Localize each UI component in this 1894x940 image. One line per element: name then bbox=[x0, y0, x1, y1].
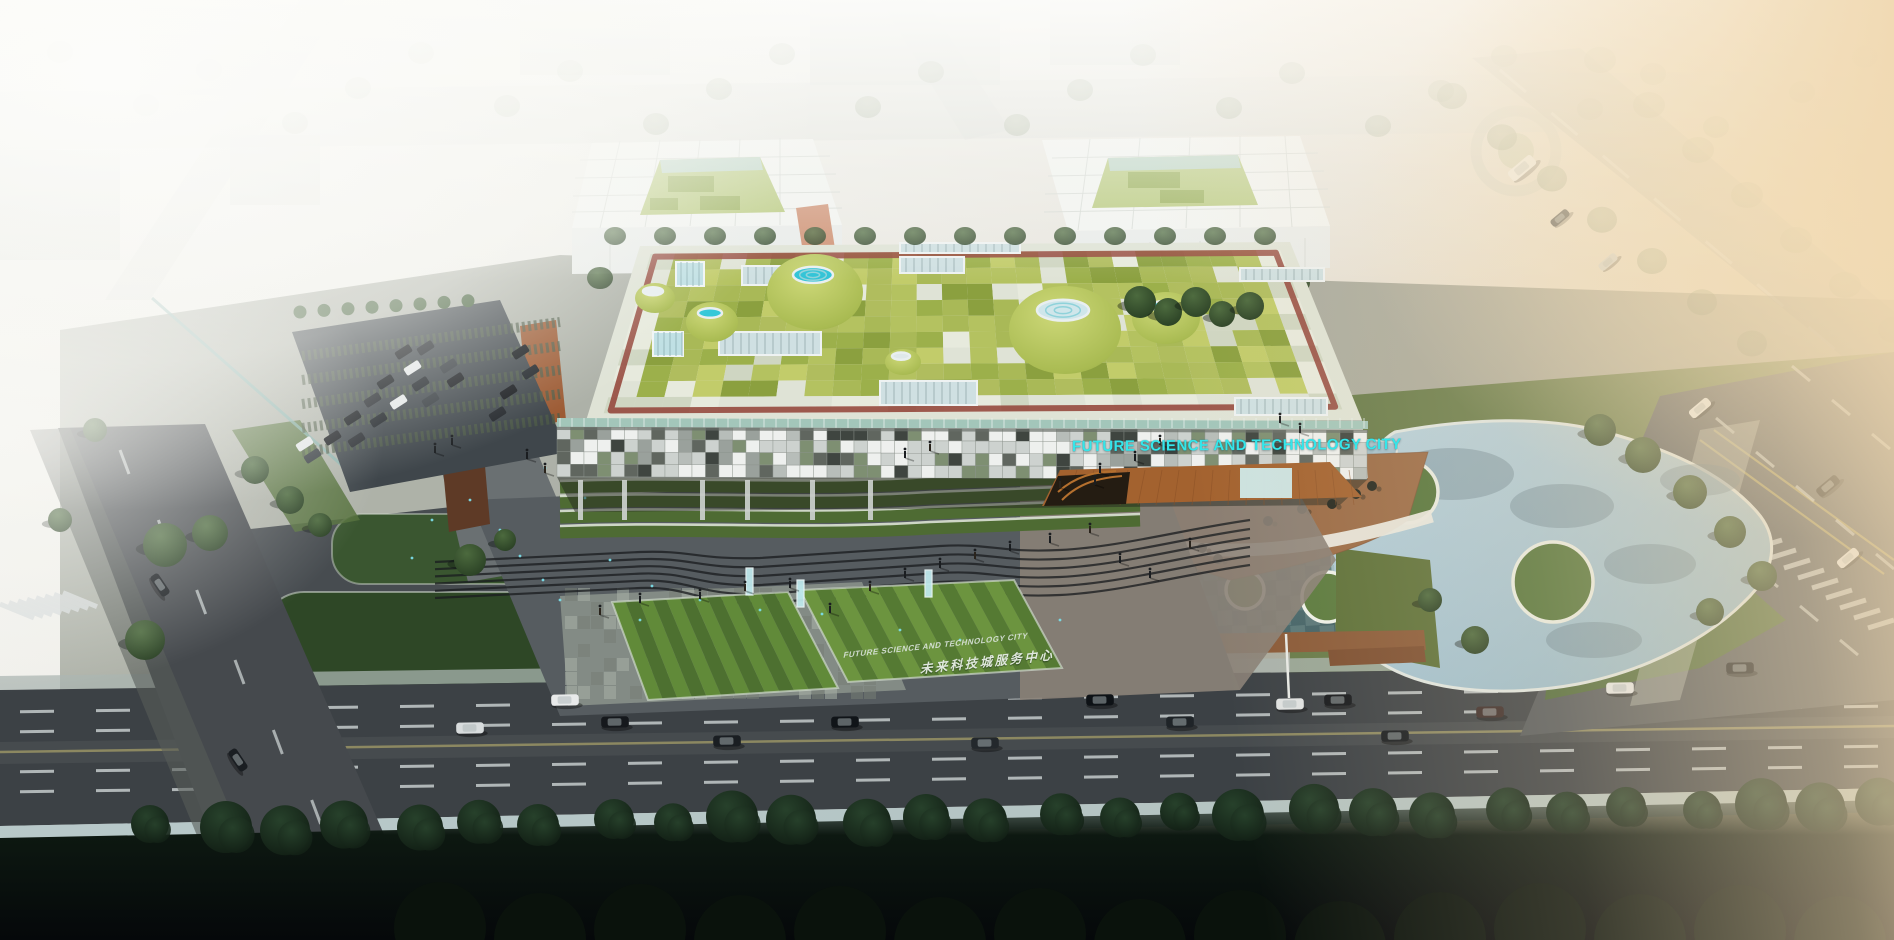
tree bbox=[276, 486, 304, 514]
facade-panel bbox=[773, 453, 787, 465]
pave-tile bbox=[591, 672, 603, 685]
hazy-tree bbox=[408, 42, 434, 64]
car-roof bbox=[978, 739, 992, 747]
facade-panel bbox=[989, 454, 1003, 466]
led-dot bbox=[821, 613, 824, 616]
avenue-tree bbox=[1829, 272, 1861, 298]
facade-panel bbox=[625, 464, 639, 476]
facade-panel bbox=[949, 453, 963, 465]
piloti-column bbox=[810, 480, 815, 520]
avenue-tree bbox=[1437, 83, 1467, 109]
facade-panel bbox=[1070, 454, 1084, 466]
roof-patch bbox=[723, 365, 753, 381]
roof-patch bbox=[867, 268, 893, 284]
car-roof bbox=[720, 737, 734, 745]
facade-panel bbox=[557, 464, 571, 476]
facade-panel bbox=[935, 453, 949, 465]
facade-panel bbox=[692, 465, 706, 477]
street-tree bbox=[1055, 806, 1084, 835]
hazy-tree bbox=[196, 59, 222, 81]
facade-panel bbox=[611, 440, 625, 452]
roof-patch bbox=[1211, 346, 1243, 362]
facade-panel bbox=[679, 452, 693, 464]
person-head bbox=[1149, 568, 1152, 571]
facade-panel bbox=[895, 466, 909, 478]
facade-panel bbox=[841, 441, 855, 453]
hazy-tree bbox=[494, 95, 520, 117]
hazy-tree bbox=[1279, 62, 1305, 84]
facade-panel bbox=[989, 466, 1003, 478]
hedge-bush bbox=[366, 301, 379, 314]
tree bbox=[494, 529, 516, 551]
facade-panel bbox=[1030, 466, 1044, 478]
back-row-tree bbox=[1104, 227, 1126, 245]
tree-shadow-on-water bbox=[1510, 484, 1614, 528]
facade-panel bbox=[1016, 441, 1030, 453]
street-tree bbox=[532, 817, 561, 846]
facade-panel bbox=[733, 453, 747, 465]
tree bbox=[125, 620, 165, 660]
facade-panel bbox=[760, 453, 774, 465]
facade-panel bbox=[719, 465, 733, 477]
person-head bbox=[434, 443, 437, 446]
facade-panel bbox=[652, 465, 666, 477]
roof-patch bbox=[942, 284, 968, 300]
piloti-column bbox=[868, 480, 873, 520]
roof-patch bbox=[917, 284, 942, 300]
roof-patch bbox=[778, 364, 807, 380]
tree bbox=[143, 523, 187, 567]
car-roof bbox=[608, 718, 622, 726]
car-roof bbox=[1331, 696, 1345, 704]
person-head bbox=[939, 558, 942, 561]
facade-panel bbox=[638, 440, 652, 452]
facade-panel bbox=[1192, 454, 1206, 466]
hazy-tree bbox=[1789, 81, 1815, 103]
facade-panel bbox=[908, 441, 922, 453]
roof-patch bbox=[1139, 267, 1168, 283]
facade-panel bbox=[638, 465, 652, 477]
street-tree bbox=[1366, 803, 1400, 837]
roof-patch bbox=[1027, 379, 1057, 395]
street-tree bbox=[608, 811, 636, 839]
roof-patch bbox=[916, 364, 944, 380]
street-tree bbox=[144, 816, 171, 843]
car-roof bbox=[1613, 684, 1627, 692]
facade-panel bbox=[868, 453, 882, 465]
person-head bbox=[929, 441, 932, 444]
person-head bbox=[1009, 541, 1012, 544]
lounge-chair bbox=[1367, 481, 1377, 491]
back-row-tree bbox=[1054, 227, 1076, 245]
facade-panel bbox=[746, 440, 760, 452]
facade-panel bbox=[1016, 454, 1030, 466]
person-head bbox=[904, 448, 907, 451]
facade-panel bbox=[881, 465, 895, 477]
facade-panel bbox=[1003, 454, 1017, 466]
person-head bbox=[1279, 413, 1282, 416]
roof-patch bbox=[1188, 266, 1218, 282]
facade-panel bbox=[557, 439, 571, 451]
led-dot bbox=[1059, 619, 1062, 622]
roof-patch bbox=[967, 284, 993, 300]
facade-panel bbox=[868, 465, 882, 477]
avenue-tree bbox=[1682, 137, 1714, 163]
facade-panel bbox=[611, 464, 625, 476]
roof-patch bbox=[917, 316, 943, 332]
led-dot bbox=[469, 499, 472, 502]
hedge-bush bbox=[294, 306, 307, 319]
street-tree bbox=[1230, 805, 1266, 841]
facade-panel bbox=[787, 465, 801, 477]
facade-panel bbox=[611, 452, 625, 464]
street-tree bbox=[860, 813, 894, 847]
roof-patch bbox=[943, 316, 970, 332]
street-tree bbox=[472, 813, 503, 844]
facade-panel bbox=[841, 453, 855, 465]
roof-patch bbox=[1089, 267, 1117, 283]
facade-panel bbox=[949, 466, 963, 478]
roof-patch bbox=[1137, 378, 1168, 394]
main-building bbox=[557, 242, 1368, 520]
facade-panel bbox=[760, 465, 774, 477]
facade-panel bbox=[1030, 454, 1044, 466]
hedge-bush bbox=[390, 299, 403, 312]
pave-tile bbox=[565, 616, 577, 629]
tree bbox=[1625, 437, 1661, 473]
street-tree bbox=[1425, 806, 1457, 838]
piloti-column bbox=[745, 480, 750, 520]
hazy-tree bbox=[918, 61, 944, 83]
street-tree bbox=[1753, 794, 1789, 830]
pave-tile bbox=[604, 658, 616, 671]
facade-panel bbox=[814, 453, 828, 465]
piloti-column bbox=[578, 480, 583, 520]
pave-tile bbox=[565, 672, 577, 685]
back-row-tree bbox=[1004, 227, 1026, 245]
roof-patch bbox=[943, 332, 970, 348]
facade-panel bbox=[922, 466, 936, 478]
roof-patch bbox=[804, 380, 833, 396]
tree bbox=[83, 418, 107, 442]
tree bbox=[587, 267, 613, 289]
hazy-tree bbox=[1216, 97, 1242, 119]
avenue-tree bbox=[1584, 47, 1616, 73]
roof-patch bbox=[971, 363, 999, 379]
facade-panel bbox=[584, 440, 598, 452]
facade-panel bbox=[584, 452, 598, 464]
facade-panel bbox=[571, 464, 585, 476]
street-tree bbox=[1114, 809, 1142, 837]
pave-tile bbox=[578, 616, 590, 629]
pave-tile bbox=[578, 644, 590, 657]
distant-building bbox=[520, 0, 670, 75]
roof-patch bbox=[713, 285, 741, 301]
court-lawn bbox=[700, 196, 740, 210]
facade-panel bbox=[854, 465, 868, 477]
roof-patch bbox=[636, 381, 668, 397]
roof-patch bbox=[863, 332, 890, 348]
facade-panel bbox=[598, 440, 612, 452]
street-tree bbox=[1813, 797, 1848, 832]
pave-tile bbox=[851, 686, 863, 699]
tree bbox=[48, 508, 72, 532]
roof-patch bbox=[738, 285, 766, 301]
facade-panel bbox=[1138, 454, 1152, 466]
car-roof bbox=[1483, 708, 1497, 716]
court-lawn bbox=[668, 176, 714, 192]
back-row-tree bbox=[1254, 227, 1276, 245]
facade-panel bbox=[827, 465, 841, 477]
facade-panel bbox=[989, 441, 1003, 453]
hazy-tree bbox=[1640, 63, 1666, 85]
person-head bbox=[526, 449, 529, 452]
roof-patch bbox=[751, 365, 781, 381]
person-head bbox=[974, 549, 977, 552]
skylight bbox=[880, 381, 977, 405]
roof-patch bbox=[1130, 347, 1160, 363]
facade-panel bbox=[557, 452, 571, 464]
hazy-tree bbox=[1130, 44, 1156, 66]
facade-panel bbox=[827, 440, 841, 452]
roof-patch bbox=[1188, 362, 1220, 378]
roof-patch bbox=[1109, 379, 1140, 395]
pave-tile bbox=[604, 616, 616, 629]
led-dot bbox=[639, 619, 642, 622]
person-head bbox=[1059, 478, 1062, 481]
roof-patch bbox=[835, 348, 863, 364]
roof-patch bbox=[692, 381, 723, 397]
piloti-column bbox=[622, 480, 627, 520]
person-head bbox=[544, 463, 547, 466]
facade-panel bbox=[1057, 441, 1071, 453]
pave-tile bbox=[604, 672, 616, 685]
facade-panel bbox=[976, 441, 990, 453]
roof-patch bbox=[968, 316, 995, 332]
roof-patch bbox=[836, 332, 864, 348]
car-roof bbox=[838, 718, 852, 726]
tree bbox=[1461, 626, 1489, 654]
hazy-tree bbox=[345, 77, 371, 99]
back-row-tree bbox=[804, 227, 826, 245]
car-roof bbox=[558, 696, 572, 704]
facade-panel bbox=[1043, 466, 1057, 478]
person-head bbox=[1049, 533, 1052, 536]
person-head bbox=[1299, 423, 1302, 426]
person-head bbox=[829, 603, 832, 606]
roof-patch bbox=[917, 300, 943, 316]
roof-patch bbox=[864, 316, 891, 332]
facade-panel bbox=[1043, 454, 1057, 466]
facade-panel bbox=[787, 453, 801, 465]
tree bbox=[192, 515, 228, 551]
back-row-tree bbox=[604, 227, 626, 245]
roof-patch bbox=[776, 380, 806, 396]
facade-panel bbox=[706, 440, 720, 452]
facade-panel bbox=[1111, 454, 1125, 466]
facade-panel bbox=[598, 452, 612, 464]
led-dot bbox=[651, 585, 654, 588]
glass-box bbox=[676, 262, 704, 286]
tree bbox=[1747, 561, 1777, 591]
tree-shadow-on-water bbox=[1546, 622, 1642, 658]
facade-panel bbox=[733, 465, 747, 477]
facade-panel bbox=[1003, 466, 1017, 478]
roof-patch bbox=[1134, 362, 1165, 378]
facade-panel bbox=[719, 440, 733, 452]
facade-panel bbox=[719, 452, 733, 464]
street-tree bbox=[1561, 804, 1590, 833]
roof-patch bbox=[834, 364, 862, 380]
roof-patch bbox=[969, 332, 996, 348]
facade-panel bbox=[665, 452, 679, 464]
street-tree bbox=[667, 815, 694, 842]
side-table bbox=[1376, 486, 1381, 491]
facade-panel bbox=[638, 452, 652, 464]
facade-panel bbox=[692, 452, 706, 464]
roof-patch bbox=[1206, 330, 1237, 346]
facade-panel bbox=[800, 453, 814, 465]
roof-patch bbox=[944, 364, 972, 380]
facade-panel bbox=[922, 453, 936, 465]
led-dot bbox=[559, 599, 562, 602]
facade-panel bbox=[584, 464, 598, 476]
roof-patch bbox=[865, 300, 891, 316]
person-head bbox=[1119, 553, 1122, 556]
roof-patch bbox=[1163, 267, 1192, 283]
hedge-bush bbox=[342, 302, 355, 315]
roof-patch bbox=[970, 347, 998, 363]
street-tree bbox=[413, 818, 445, 850]
facade-panel bbox=[706, 465, 720, 477]
facade-panel bbox=[665, 465, 679, 477]
facade-panel bbox=[571, 439, 585, 451]
facade-panel bbox=[665, 440, 679, 452]
roof-patch bbox=[664, 381, 695, 397]
roof-patch bbox=[832, 380, 861, 396]
facade-panel bbox=[625, 452, 639, 464]
car-roof bbox=[1093, 696, 1107, 704]
roof-patch bbox=[1275, 378, 1308, 394]
hazy-tree bbox=[769, 43, 795, 65]
roof-patch bbox=[1157, 346, 1188, 362]
roof-patch bbox=[992, 284, 1019, 300]
roof-patch bbox=[1220, 378, 1253, 394]
glass-fin bbox=[925, 570, 932, 597]
facade-panel bbox=[652, 452, 666, 464]
glass-entrance bbox=[1240, 468, 1292, 498]
street-tree bbox=[919, 808, 951, 840]
roof-patch bbox=[668, 365, 699, 381]
tree bbox=[1584, 414, 1616, 446]
person-head bbox=[1099, 463, 1102, 466]
facade-panel bbox=[814, 440, 828, 452]
roof-patch bbox=[1242, 362, 1275, 378]
avenue-tree bbox=[1487, 124, 1517, 150]
cone-skylight-pool bbox=[892, 353, 910, 360]
led-dot bbox=[519, 555, 522, 558]
roof-patch bbox=[1184, 346, 1215, 362]
roof-patch bbox=[806, 364, 835, 380]
roof-patch bbox=[1106, 363, 1136, 379]
pave-tile bbox=[630, 686, 642, 699]
roof-patch bbox=[943, 348, 970, 364]
led-dot bbox=[411, 557, 414, 560]
facade-panel bbox=[787, 440, 801, 452]
roof-patch bbox=[1232, 330, 1264, 346]
facade-panel bbox=[800, 440, 814, 452]
roof-patch bbox=[999, 379, 1028, 395]
back-row-tree bbox=[754, 227, 776, 245]
street-tree bbox=[1173, 804, 1200, 831]
hazy-tree bbox=[557, 60, 583, 82]
tree-shadow-on-water bbox=[1604, 544, 1696, 584]
street-tree bbox=[724, 806, 760, 842]
pave-tile bbox=[565, 658, 577, 671]
roof-patch bbox=[968, 300, 995, 316]
facade-panel bbox=[854, 453, 868, 465]
person-head bbox=[1089, 523, 1092, 526]
person-head bbox=[1189, 538, 1192, 541]
facade-panel bbox=[935, 441, 949, 453]
facade-panel bbox=[773, 440, 787, 452]
hazy-tree bbox=[1004, 114, 1030, 136]
hedge-bush bbox=[318, 304, 331, 317]
pave-tile bbox=[578, 686, 590, 699]
roof-patch bbox=[866, 284, 892, 300]
tree bbox=[241, 456, 269, 484]
facade-panel bbox=[746, 465, 760, 477]
pave-tile bbox=[864, 686, 876, 699]
hazy-tree bbox=[643, 113, 669, 135]
distant-building bbox=[1050, 0, 1180, 65]
facade-panel bbox=[1151, 454, 1165, 466]
roof-patch bbox=[1164, 378, 1196, 394]
tree bbox=[1673, 475, 1707, 509]
facade-panel bbox=[1057, 454, 1071, 466]
cone-skylight-pool bbox=[643, 287, 663, 295]
roof-patch bbox=[1215, 362, 1247, 378]
tree bbox=[308, 513, 332, 537]
facade-panel bbox=[679, 440, 693, 452]
street-tree bbox=[784, 810, 819, 845]
facade-panel bbox=[1178, 454, 1192, 466]
pave-tile bbox=[591, 602, 603, 615]
street-tree bbox=[1696, 802, 1723, 829]
roof-patch bbox=[735, 301, 763, 317]
roof-patch bbox=[1054, 379, 1084, 395]
pave-tile bbox=[591, 616, 603, 629]
back-row-tree bbox=[654, 227, 676, 245]
hazy-tree bbox=[1365, 115, 1391, 137]
back-row-tree bbox=[854, 227, 876, 245]
street-tree bbox=[1307, 799, 1342, 834]
tree bbox=[454, 544, 486, 576]
person-head bbox=[904, 568, 907, 571]
facade-panel bbox=[854, 441, 868, 453]
facade-panel bbox=[962, 453, 976, 465]
facade-panel bbox=[1003, 441, 1017, 453]
roof-patch bbox=[998, 363, 1027, 379]
cone-skylight-pool bbox=[698, 308, 722, 318]
street-tree bbox=[1501, 801, 1532, 832]
roof-patch bbox=[890, 332, 917, 348]
facade-panel bbox=[976, 466, 990, 478]
hedge-bush bbox=[462, 294, 475, 307]
cone-skylight bbox=[767, 254, 863, 330]
tree bbox=[1154, 298, 1182, 326]
facade-panel bbox=[1084, 454, 1098, 466]
